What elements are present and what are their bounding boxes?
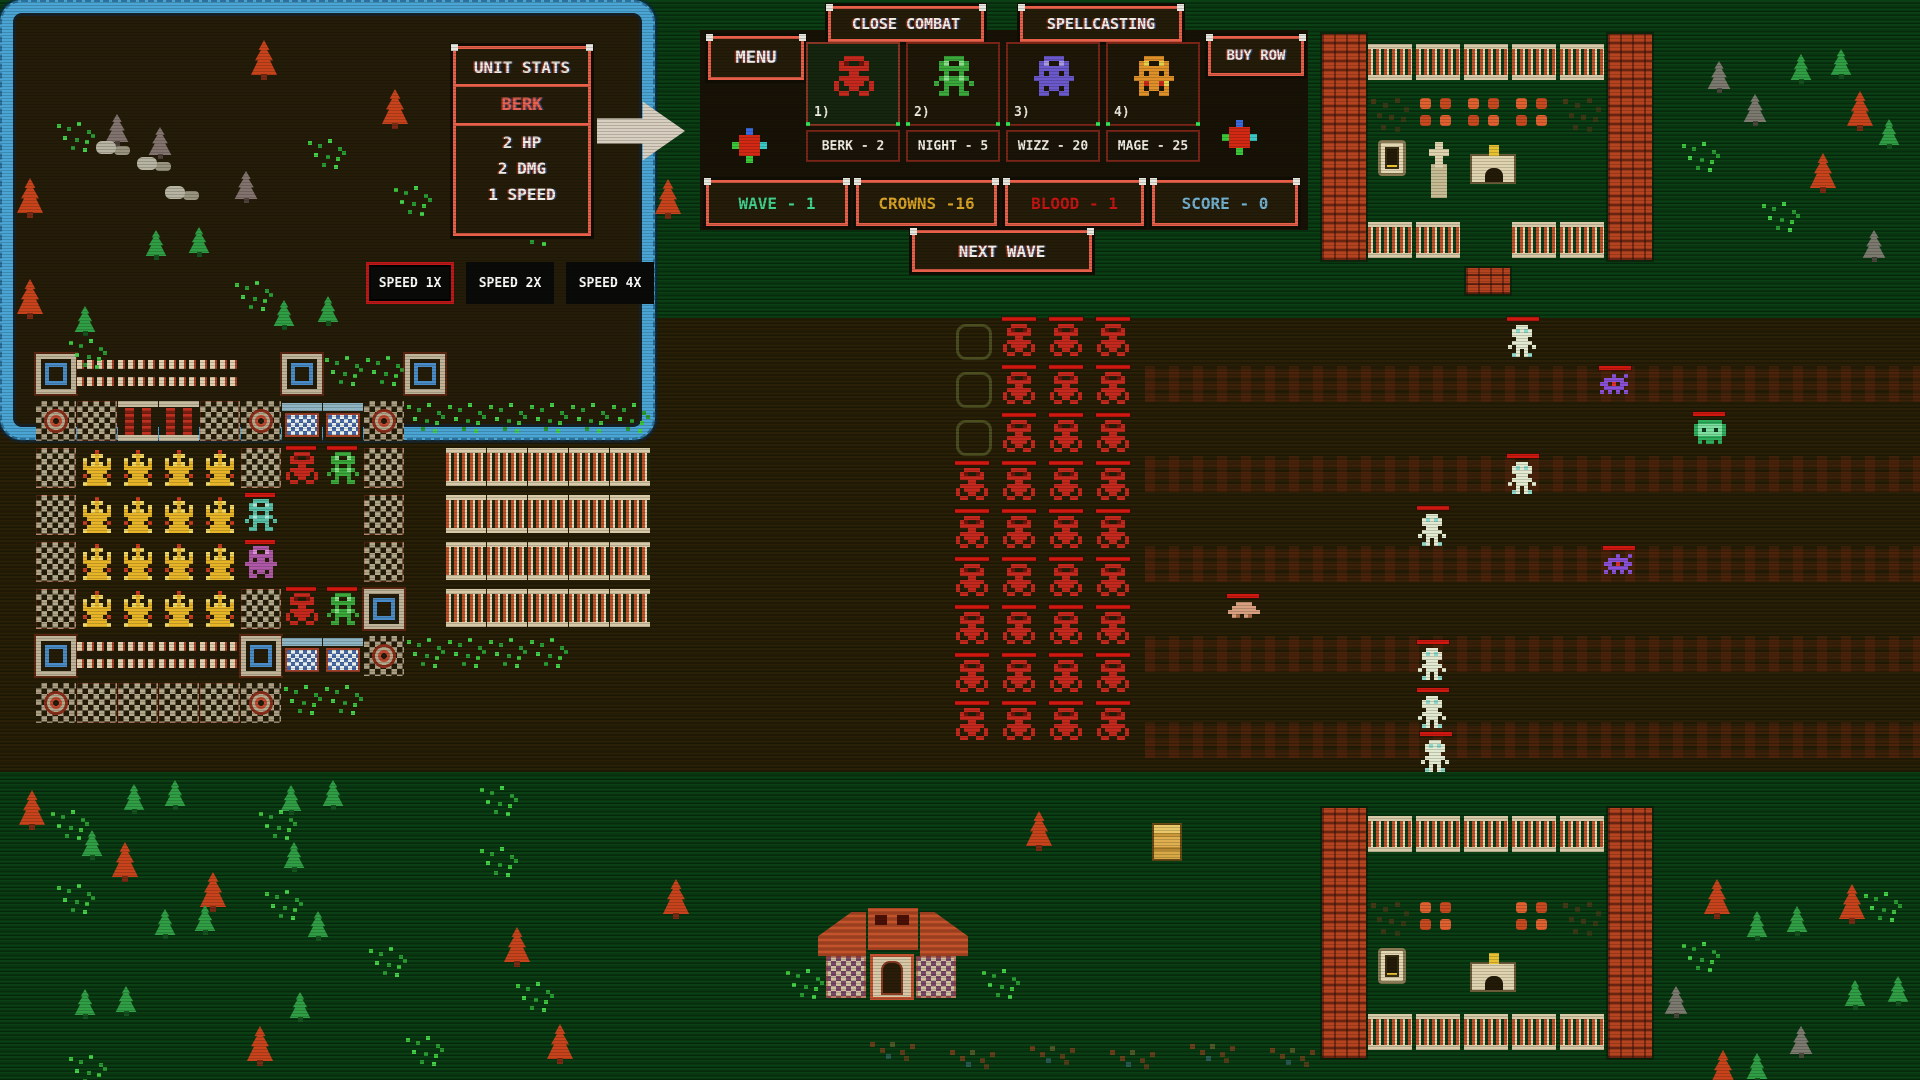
- pine-tree: [163, 780, 187, 810]
- graveyard-fence: [1368, 1014, 1412, 1050]
- unit-slot-number: 1): [814, 105, 830, 120]
- rocks: [165, 186, 201, 202]
- hp-bar: [1420, 732, 1452, 736]
- castle-tile: [282, 636, 322, 676]
- hp-bar: [245, 493, 275, 497]
- orange-tree: [545, 1024, 575, 1064]
- hp-bar: [1096, 365, 1130, 369]
- hp-bar: [955, 605, 989, 609]
- cursor-star-icon: [1222, 120, 1257, 155]
- hp-bar: [1002, 317, 1036, 321]
- castle-tile: [487, 589, 527, 627]
- spider-sprite: [1604, 554, 1632, 574]
- grass-patch: [478, 784, 518, 814]
- castle-tile: [77, 683, 117, 723]
- knight-sprite: [327, 452, 359, 484]
- speed-4x-button[interactable]: SPEED 4X: [566, 262, 654, 304]
- crown-sprite: [120, 544, 156, 580]
- pine-tree: [282, 842, 306, 872]
- hp-bar: [1227, 594, 1259, 598]
- orange-tree: [249, 40, 279, 80]
- grass-patch: [514, 980, 554, 1010]
- castle-tile: [528, 448, 568, 486]
- berk-sprite: [1003, 612, 1035, 644]
- berk-sprite: [1003, 372, 1035, 404]
- castle-tile: [241, 589, 281, 629]
- blood-status: BLOOD - 1: [1005, 180, 1144, 226]
- castle-tile: [446, 495, 486, 533]
- grass-patch: [404, 1034, 444, 1064]
- castle-tile: [364, 589, 404, 629]
- castle-tile: [77, 401, 117, 441]
- unit-stats-title: UNIT STATS: [456, 49, 588, 87]
- pine-tree: [1886, 976, 1910, 1006]
- castle-tile: [610, 495, 650, 533]
- grass-patch: [1862, 890, 1902, 920]
- ground-texture: [1145, 722, 1920, 758]
- castle-tile: [118, 636, 158, 676]
- dirt-patch: [1560, 900, 1604, 980]
- crown-sprite: [120, 591, 156, 627]
- castle-tile: [569, 448, 609, 486]
- unit-stats-speed: 1 SPEED: [456, 178, 588, 204]
- berk-sprite: [1003, 516, 1035, 548]
- hp-bar: [1002, 653, 1036, 657]
- pine-tree: [316, 296, 340, 326]
- unit-stats-dmg: 2 DMG: [456, 152, 588, 178]
- spawn-placeholder: [956, 420, 992, 456]
- castle-tile: [364, 401, 404, 441]
- graveyard-fence: [1416, 44, 1460, 80]
- grey-tree: [147, 127, 173, 159]
- castle-tile: [487, 448, 527, 486]
- price-label-wizz: WIZZ - 20: [1006, 130, 1100, 162]
- berk-sprite: [956, 612, 988, 644]
- berk-sprite: [1050, 660, 1082, 692]
- castle-tile: [36, 683, 76, 723]
- grave-cross: [1426, 140, 1452, 178]
- crowns-status: CROWNS -16: [856, 180, 997, 226]
- pine-tree: [153, 909, 177, 939]
- castle-tile: [487, 542, 527, 580]
- grave-door: [1378, 140, 1406, 176]
- knight-sprite: [327, 593, 359, 625]
- brick-block: [1466, 268, 1510, 294]
- pine-tree: [1789, 54, 1813, 84]
- pine-tree: [1843, 980, 1867, 1010]
- cyan-sprite: [245, 499, 277, 531]
- knight-sprite: [934, 56, 974, 96]
- berk-sprite: [1050, 516, 1082, 548]
- buy-row-button[interactable]: BUY ROW: [1208, 36, 1304, 76]
- mage-sprite: [1134, 56, 1174, 96]
- orange-tree: [1845, 91, 1875, 131]
- grass-patch: [257, 808, 297, 838]
- unit-stats-hp: 2 HP: [456, 126, 588, 152]
- grey-tree: [1788, 1026, 1814, 1058]
- grass-patch: [263, 888, 303, 918]
- ground-texture: [1145, 546, 1920, 582]
- unit-stats-name: BERK: [456, 87, 588, 126]
- castle-tile: [323, 683, 363, 723]
- hp-bar: [1417, 506, 1449, 510]
- castle-tile: [241, 683, 281, 723]
- crown-sprite: [120, 450, 156, 486]
- berk-sprite: [1003, 660, 1035, 692]
- rose-bush: [1416, 900, 1460, 936]
- orange-tree: [1808, 153, 1838, 193]
- house-roof: [920, 912, 968, 956]
- score-status: SCORE - 0: [1152, 180, 1298, 226]
- graveyard-fence: [1416, 816, 1460, 852]
- crown-sprite: [79, 450, 115, 486]
- dirt-patch: [1560, 96, 1604, 176]
- castle-tile: [610, 401, 650, 441]
- castle-tile: [487, 401, 527, 441]
- rose-bush: [1512, 96, 1556, 132]
- castle-tile: [364, 495, 404, 535]
- crown-sprite: [161, 450, 197, 486]
- unit-stats-panel: UNIT STATS BERK 2 HP 2 DMG 1 SPEED: [453, 46, 591, 236]
- orange-tree: [110, 842, 140, 882]
- brick-pillar: [1608, 34, 1652, 260]
- castle-tile: [569, 589, 609, 627]
- crown-sprite: [202, 450, 238, 486]
- berk-sprite: [834, 56, 874, 96]
- spawn-placeholder: [956, 372, 992, 408]
- unit-slot-mage[interactable]: 4): [1106, 42, 1200, 126]
- crown-sprite: [79, 497, 115, 533]
- spellcasting-header: SPELLCASTING: [1020, 6, 1182, 42]
- pine-tree: [114, 986, 138, 1016]
- house-door: [870, 954, 914, 1000]
- grass-patch: [392, 184, 432, 214]
- pine-tree: [73, 989, 97, 1019]
- spider-sprite: [1600, 374, 1628, 394]
- grass-patch: [55, 120, 95, 150]
- tank-sprite: [1694, 420, 1726, 444]
- berk-sprite: [1003, 708, 1035, 740]
- castle-tile: [364, 354, 404, 394]
- castle-tile: [159, 401, 199, 441]
- grave-tomb: [1470, 962, 1516, 992]
- orange-tree: [245, 1026, 275, 1066]
- graveyard-fence: [1368, 44, 1412, 80]
- berk-sprite: [956, 660, 988, 692]
- crown-sprite: [202, 591, 238, 627]
- hp-bar: [955, 653, 989, 657]
- menu-button[interactable]: MENU: [708, 36, 804, 80]
- orange-tree: [380, 89, 410, 129]
- castle-tile: [569, 495, 609, 533]
- hp-bar: [1096, 317, 1130, 321]
- ground-texture: [1145, 366, 1920, 402]
- hp-bar: [1417, 640, 1449, 644]
- orange-tree: [1024, 811, 1054, 851]
- castle-tile: [159, 636, 199, 676]
- castle-tile: [610, 542, 650, 580]
- orange-tree: [502, 927, 532, 967]
- hp-bar: [1049, 701, 1083, 705]
- castle-tile: [118, 354, 158, 394]
- house-wall: [826, 956, 866, 998]
- castle-tile: [36, 448, 76, 488]
- orange-tree: [1708, 1050, 1738, 1080]
- unit-slot-wizz[interactable]: 3): [1006, 42, 1100, 126]
- castle-tile: [528, 589, 568, 627]
- speed-1x-button[interactable]: SPEED 1X: [366, 262, 454, 304]
- hp-bar: [1096, 509, 1130, 513]
- grass-patch: [233, 279, 273, 309]
- berk-sprite: [1050, 468, 1082, 500]
- hp-bar: [1049, 317, 1083, 321]
- unit-slot-number: 2): [914, 105, 930, 120]
- skeleton-sprite: [1418, 514, 1446, 546]
- castle-tile: [528, 636, 568, 676]
- graveyard-fence: [1368, 222, 1412, 258]
- crown-sprite: [79, 591, 115, 627]
- pine-tree: [1745, 911, 1769, 941]
- rocks: [96, 141, 132, 157]
- graveyard-fence: [1560, 44, 1604, 80]
- castle-tile: [569, 542, 609, 580]
- berk-sprite: [1050, 372, 1082, 404]
- grass-patch: [478, 845, 518, 875]
- pine-tree: [144, 230, 168, 260]
- pine-tree: [306, 911, 330, 941]
- castle-tile: [241, 401, 281, 441]
- berk-sprite: [1003, 564, 1035, 596]
- hp-bar: [245, 540, 275, 544]
- rose-bush: [1416, 96, 1460, 132]
- berk-sprite: [1097, 420, 1129, 452]
- hp-bar: [1507, 317, 1539, 321]
- hp-bar: [955, 509, 989, 513]
- crown-sprite: [161, 591, 197, 627]
- pine-tree: [1785, 906, 1809, 936]
- hp-bar: [1096, 701, 1130, 705]
- castle-tile: [528, 542, 568, 580]
- castle-tile: [282, 683, 322, 723]
- house-roof: [818, 912, 866, 956]
- pine-tree: [73, 306, 97, 336]
- berk-sprite: [286, 593, 318, 625]
- grey-tree: [233, 171, 259, 203]
- castle-tile: [610, 589, 650, 627]
- next-wave-button[interactable]: NEXT WAVE: [912, 230, 1092, 272]
- hp-bar: [955, 701, 989, 705]
- hp-bar: [1096, 461, 1130, 465]
- castle-tile: [323, 401, 363, 441]
- hp-bar: [1002, 605, 1036, 609]
- hp-bar: [1049, 557, 1083, 561]
- hp-bar: [1049, 605, 1083, 609]
- unit-slot-number: 4): [1114, 105, 1130, 120]
- berk-sprite: [1097, 660, 1129, 692]
- castle-tile: [241, 448, 281, 488]
- pine-tree: [288, 992, 312, 1022]
- rose-bush: [1464, 96, 1508, 132]
- castle-tile: [487, 495, 527, 533]
- grass-patch: [367, 945, 407, 975]
- castle-tile: [446, 542, 486, 580]
- berk-sprite: [1003, 420, 1035, 452]
- berk-sprite: [1097, 324, 1129, 356]
- crown-sprite: [120, 497, 156, 533]
- dirt-speckles: [1110, 1050, 1154, 1070]
- price-label-mage: MAGE - 25: [1106, 130, 1200, 162]
- castle-tile: [36, 401, 76, 441]
- grave-door: [1378, 948, 1406, 984]
- graveyard-fence: [1512, 222, 1556, 258]
- wave-status: WAVE - 1: [706, 180, 848, 226]
- hp-bar: [1002, 365, 1036, 369]
- berk-sprite: [956, 516, 988, 548]
- berk-sprite: [1097, 564, 1129, 596]
- hp-bar: [1599, 366, 1631, 370]
- orange-tree: [653, 179, 683, 219]
- house: [818, 908, 970, 1002]
- berk-sprite: [1050, 324, 1082, 356]
- berk-sprite: [956, 708, 988, 740]
- castle-tile: [364, 636, 404, 676]
- dirt-speckles: [1190, 1044, 1234, 1064]
- castle-tile: [36, 542, 76, 582]
- castle-tile: [200, 354, 240, 394]
- castle-tile: [323, 636, 363, 676]
- hp-bar: [1603, 546, 1635, 550]
- castle-tile: [405, 401, 445, 441]
- castle-tile: [446, 448, 486, 486]
- castle-tile: [282, 354, 322, 394]
- castle-tile: [446, 636, 486, 676]
- hp-bar: [955, 461, 989, 465]
- castle-tile: [118, 401, 158, 441]
- castle-tile: [118, 683, 158, 723]
- rocks: [137, 157, 173, 173]
- crown-sprite: [202, 497, 238, 533]
- grass-patch: [306, 137, 346, 167]
- castle-tile: [446, 401, 486, 441]
- orange-tree: [1702, 879, 1732, 919]
- castle-tile: [77, 636, 117, 676]
- grass-patch: [67, 1053, 107, 1080]
- castle-tile: [528, 495, 568, 533]
- berk-sprite: [1050, 564, 1082, 596]
- grey-tree: [1861, 230, 1887, 262]
- graveyard-fence: [1464, 1014, 1508, 1050]
- castle-tile: [241, 636, 281, 676]
- hp-bar: [1049, 365, 1083, 369]
- hp-bar: [286, 446, 316, 450]
- grass-patch: [1680, 140, 1720, 170]
- blob-sprite: [1228, 602, 1260, 618]
- castle-tile: [446, 589, 486, 627]
- pine-tree: [193, 905, 217, 935]
- crown-sprite: [161, 497, 197, 533]
- berk-sprite: [1097, 708, 1129, 740]
- graveyard-fence: [1416, 222, 1460, 258]
- unit-slot-knight[interactable]: 2): [906, 42, 1000, 126]
- berk-sprite: [956, 468, 988, 500]
- graveyard-fence: [1512, 1014, 1556, 1050]
- skeleton-sprite: [1418, 696, 1446, 728]
- unit-slot-number: 3): [1014, 105, 1030, 120]
- castle-tile: [282, 401, 322, 441]
- castle-tile: [159, 354, 199, 394]
- purple-sprite: [245, 546, 277, 578]
- graveyard-fence: [1512, 816, 1556, 852]
- berk-sprite: [1050, 612, 1082, 644]
- graveyard-fence: [1560, 1014, 1604, 1050]
- hp-bar: [1002, 557, 1036, 561]
- grey-tree: [1742, 94, 1768, 126]
- ground-texture: [1145, 636, 1920, 672]
- castle-tile: [323, 354, 363, 394]
- pine-tree: [122, 784, 146, 814]
- graveyard-fence: [1560, 816, 1604, 852]
- castle-tile: [569, 401, 609, 441]
- pine-tree: [1877, 119, 1901, 149]
- hp-bar: [1002, 413, 1036, 417]
- crown-sprite: [79, 544, 115, 580]
- wizz-sprite: [1034, 56, 1074, 96]
- graveyard-fence: [1464, 44, 1508, 80]
- skeleton-sprite: [1418, 648, 1446, 680]
- hp-bar: [327, 446, 357, 450]
- berk-sprite: [956, 564, 988, 596]
- close-combat-header: CLOSE COMBAT: [828, 6, 984, 42]
- castle-tile: [364, 542, 404, 582]
- skeleton-sprite: [1508, 462, 1536, 494]
- berk-sprite: [1097, 612, 1129, 644]
- orange-tree: [17, 790, 47, 830]
- berk-sprite: [1003, 324, 1035, 356]
- graveyard-fence: [1464, 816, 1508, 852]
- berk-sprite: [1003, 468, 1035, 500]
- house-roof: [868, 908, 918, 950]
- speed-2x-button[interactable]: SPEED 2X: [466, 262, 554, 304]
- berk-sprite: [1097, 516, 1129, 548]
- hp-bar: [286, 587, 316, 591]
- crown-sprite: [202, 544, 238, 580]
- grass-patch: [49, 808, 89, 838]
- castle-tile: [36, 589, 76, 629]
- pine-tree: [1829, 49, 1853, 79]
- berk-sprite: [1097, 372, 1129, 404]
- crate: [1152, 823, 1182, 861]
- hp-bar: [1096, 653, 1130, 657]
- grey-tree: [1663, 986, 1689, 1018]
- grave-tomb: [1470, 154, 1516, 184]
- berk-sprite: [1050, 420, 1082, 452]
- dirt-speckles: [950, 1050, 994, 1070]
- hp-bar: [1096, 557, 1130, 561]
- unit-slot-berk[interactable]: 1): [806, 42, 900, 126]
- brick-pillar: [1608, 808, 1652, 1058]
- grass-patch: [55, 882, 95, 912]
- hp-bar: [1049, 413, 1083, 417]
- game-stage: UNIT STATS BERK 2 HP 2 DMG 1 SPEED MENU …: [0, 0, 1920, 1080]
- hp-bar: [955, 557, 989, 561]
- hp-bar: [1096, 605, 1130, 609]
- hp-bar: [327, 587, 357, 591]
- brick-pillar: [1322, 34, 1366, 260]
- grass-patch: [980, 967, 1020, 997]
- castle-tile: [200, 401, 240, 441]
- orange-tree: [15, 178, 45, 218]
- graveyard-fence: [1416, 1014, 1460, 1050]
